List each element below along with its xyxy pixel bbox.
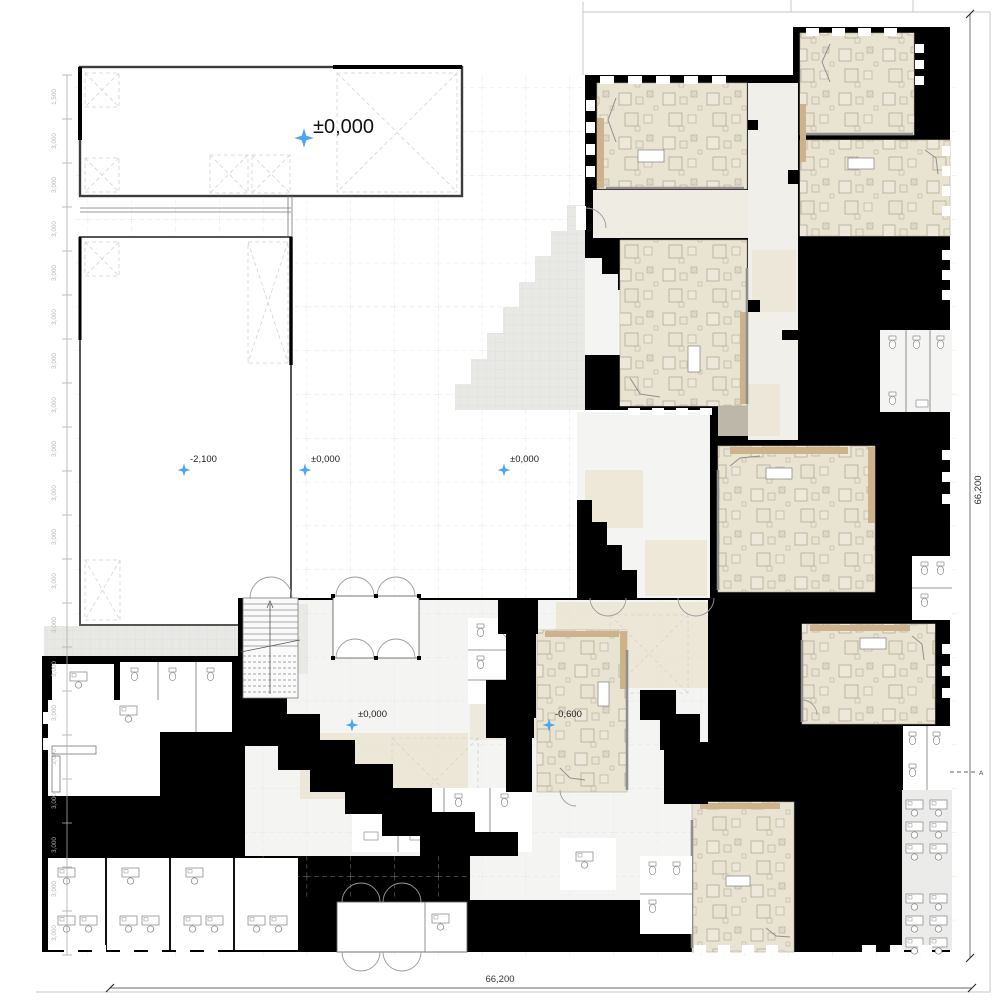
ruler-tick-label: 3,000 — [51, 749, 58, 765]
ruler-tick-label: 3,000 — [51, 353, 58, 369]
ruler-tick-label: 3,000 — [51, 133, 58, 149]
floor-plan-canvas: 66,200 66,200 A 1,5003,0003,0003,0003,00… — [0, 0, 1000, 1000]
dimension-right-label: 66,200 — [973, 475, 984, 504]
teacher-desk — [848, 158, 874, 169]
ruler-tick-label: 1,500 — [51, 89, 58, 105]
ruler-tick-label: 3,000 — [51, 397, 58, 413]
elevation-label: ±0,000 — [510, 454, 539, 465]
ruler-tick-label: 3,000 — [51, 309, 58, 325]
ruler-tick-label: 3,000 — [51, 529, 58, 545]
classroom-east-3 — [802, 624, 935, 724]
wc-cluster-south — [640, 856, 692, 934]
ruler-tick-label: 3,000 — [51, 485, 58, 501]
ruler-tick-label: 3,000 — [51, 177, 58, 193]
ruler-tick-label: 3,000 — [51, 573, 58, 589]
classroom-east-2 — [718, 446, 875, 592]
elevation-label: ±0,000 — [358, 709, 387, 720]
teacher-desk — [688, 346, 700, 372]
ruler-tick-label: 3,000 — [51, 793, 58, 809]
wc-cluster-east-2 — [912, 556, 952, 620]
ruler-tick-label: 3,000 — [51, 881, 58, 897]
dimension-bottom: 66,200 — [106, 974, 976, 992]
dimension-right: 66,200 — [966, 10, 984, 962]
upper-hall — [80, 67, 462, 196]
ruler-tick-label: 3,000 — [51, 441, 58, 457]
teacher-desk — [638, 150, 664, 162]
elevation-label: -2,100 — [190, 454, 217, 465]
teacher-desk — [598, 682, 609, 706]
elevation-label: ±0,000 — [311, 454, 340, 465]
ruler-tick-label: 3,000 — [51, 221, 58, 237]
classroom-south — [537, 630, 627, 792]
classroom-center — [620, 240, 747, 406]
ruler-tick-label: 3,000 — [51, 617, 58, 633]
ruler-tick-label: 3,000 — [51, 265, 58, 281]
elevation-label: -0,600 — [555, 709, 582, 720]
elevation-label: ±0,000 — [313, 116, 374, 138]
teacher-desk — [726, 876, 750, 886]
ruler-tick-label: 3,000 — [51, 661, 58, 677]
teacher-desk — [766, 468, 792, 479]
office-center-small — [560, 838, 616, 890]
ruler-tick-label: 3,000 — [51, 837, 58, 853]
wc-cluster-east-3 — [903, 726, 952, 790]
teacher-desk — [860, 638, 886, 649]
classroom-north-2 — [800, 33, 914, 135]
section-marker-label: A — [979, 770, 984, 777]
floor-plan-sheet: 66,200 66,200 A 1,5003,0003,0003,0003,00… — [0, 0, 1000, 1000]
office-southwest — [48, 858, 298, 950]
wc-cluster-east-1 — [880, 330, 952, 412]
staircase — [241, 598, 300, 698]
ruler-tick-label: 3,000 — [51, 705, 58, 721]
classroom-north-1 — [597, 83, 747, 189]
classroom-south-2 — [692, 802, 794, 952]
dimension-bottom-label: 66,200 — [485, 974, 514, 985]
lower-hall — [80, 237, 291, 625]
office-southeast — [902, 790, 952, 954]
ruler-tick-label: 3,000 — [51, 925, 58, 941]
